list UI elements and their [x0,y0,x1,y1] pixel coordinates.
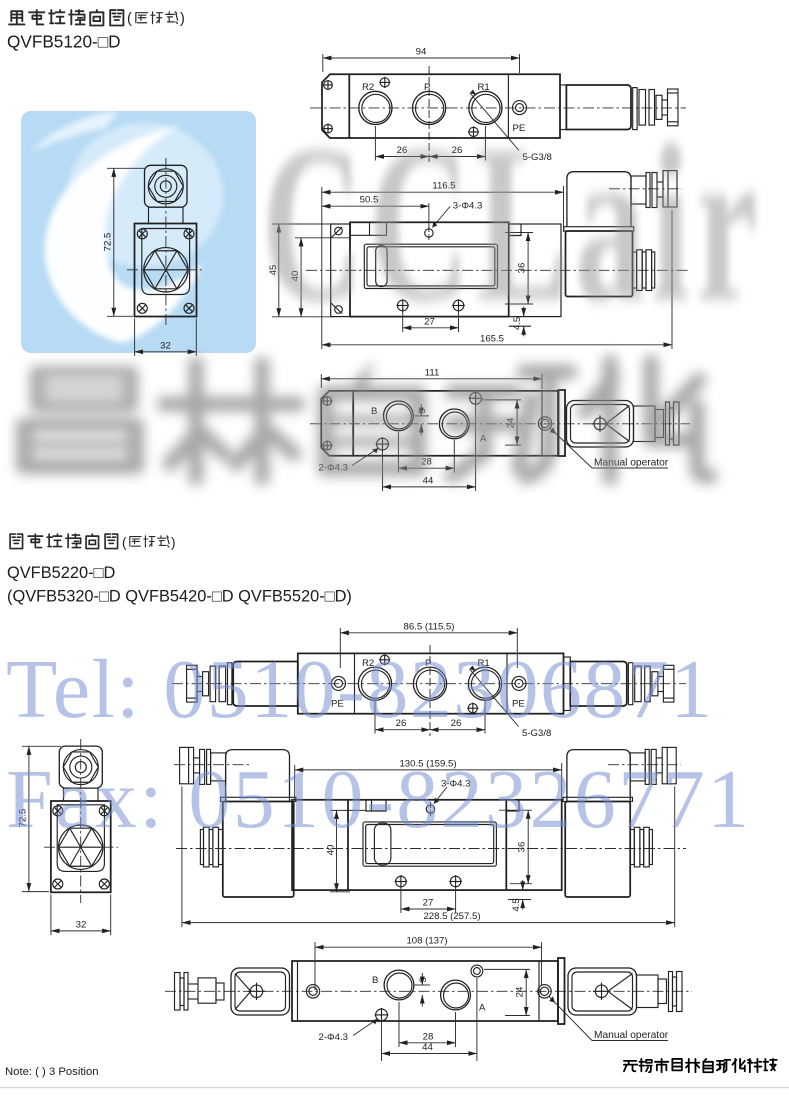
svg-text:108 (137): 108 (137) [406,936,447,947]
svg-text:): ) [171,535,176,550]
svg-text:228.5 (257.5): 228.5 (257.5) [423,911,480,922]
svg-text:28: 28 [423,1031,434,1042]
svg-text:32: 32 [76,919,87,930]
svg-text:A: A [479,1003,486,1014]
svg-text:2-Φ4.3: 2-Φ4.3 [319,1032,349,1043]
svg-text:(: ( [122,535,127,550]
svg-text:QVFB5220-□D: QVFB5220-□D [7,564,115,582]
svg-text:40: 40 [326,845,337,856]
svg-text:B: B [372,975,378,986]
svg-text:Note: ( ) 3 Position: Note: ( ) 3 Position [5,1066,99,1078]
svg-text:86.5 (115.5): 86.5 (115.5) [403,621,454,632]
svg-text:3: 3 [418,977,429,982]
svg-text:27: 27 [423,898,434,909]
svg-text:(QVFB5320-□D QVFB5420-□D QVF: (QVFB5320-□D QVFB5420-□D QVFB5520-□D) [7,588,352,606]
svg-text:Manual operator: Manual operator [594,1030,669,1041]
svg-text:24: 24 [515,986,526,997]
svg-text:44: 44 [422,1042,433,1053]
svg-text:4.5: 4.5 [511,898,522,911]
